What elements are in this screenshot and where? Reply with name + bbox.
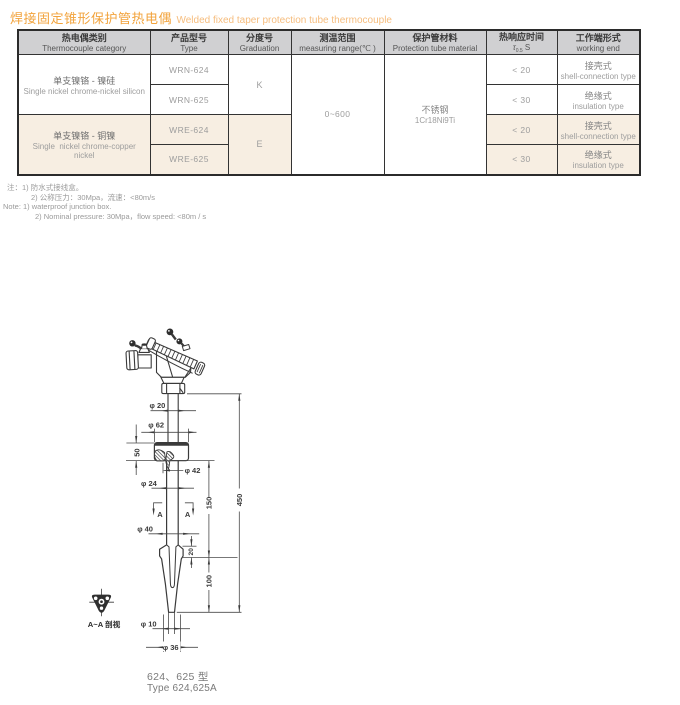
svg-text:100: 100 [204,575,213,588]
svg-text:20: 20 [188,548,195,556]
svg-text:450: 450 [235,494,244,507]
svg-text:A: A [185,510,191,519]
svg-text:A: A [157,510,163,519]
svg-text:φ 36: φ 36 [163,643,179,652]
svg-text:50: 50 [133,448,142,456]
svg-text:150: 150 [204,497,213,510]
svg-text:φ 20: φ 20 [150,401,166,410]
svg-text:A~A 剖视: A~A 剖视 [88,619,121,629]
svg-text:φ 62: φ 62 [148,421,164,430]
svg-text:φ 10: φ 10 [141,619,157,628]
svg-text:φ 24: φ 24 [141,479,158,488]
svg-text:φ 40: φ 40 [137,525,153,534]
svg-text:φ 42: φ 42 [185,466,201,475]
